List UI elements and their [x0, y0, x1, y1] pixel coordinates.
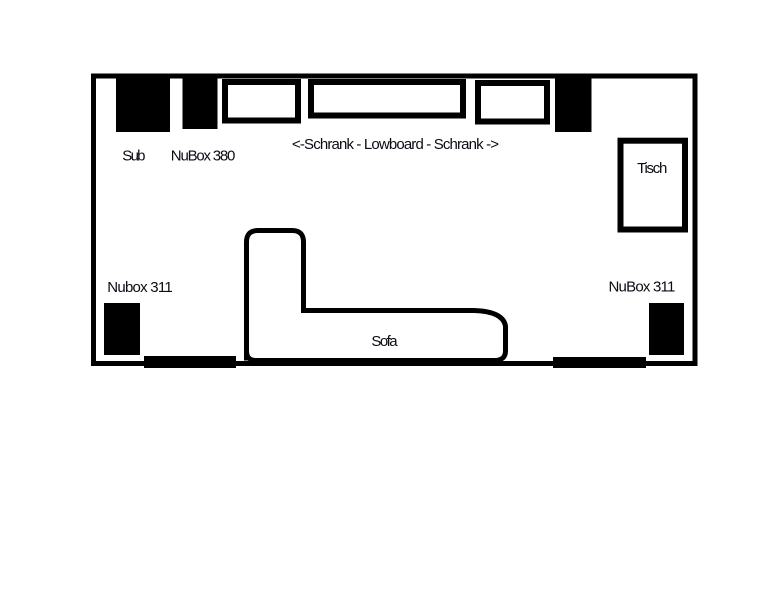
svg-text:Tisch: Tisch [637, 160, 667, 177]
svg-text:NuBox 380: NuBox 380 [171, 148, 236, 165]
svg-text:Sofa: Sofa [371, 333, 398, 350]
svg-text:Sub: Sub [122, 148, 145, 165]
svg-text:NuBox 311: NuBox 311 [609, 278, 676, 295]
svg-text:Nubox 311: Nubox 311 [107, 279, 172, 296]
svg-text:<-Schrank - Lowboard - Schrank: <-Schrank - Lowboard - Schrank -> [292, 136, 499, 153]
